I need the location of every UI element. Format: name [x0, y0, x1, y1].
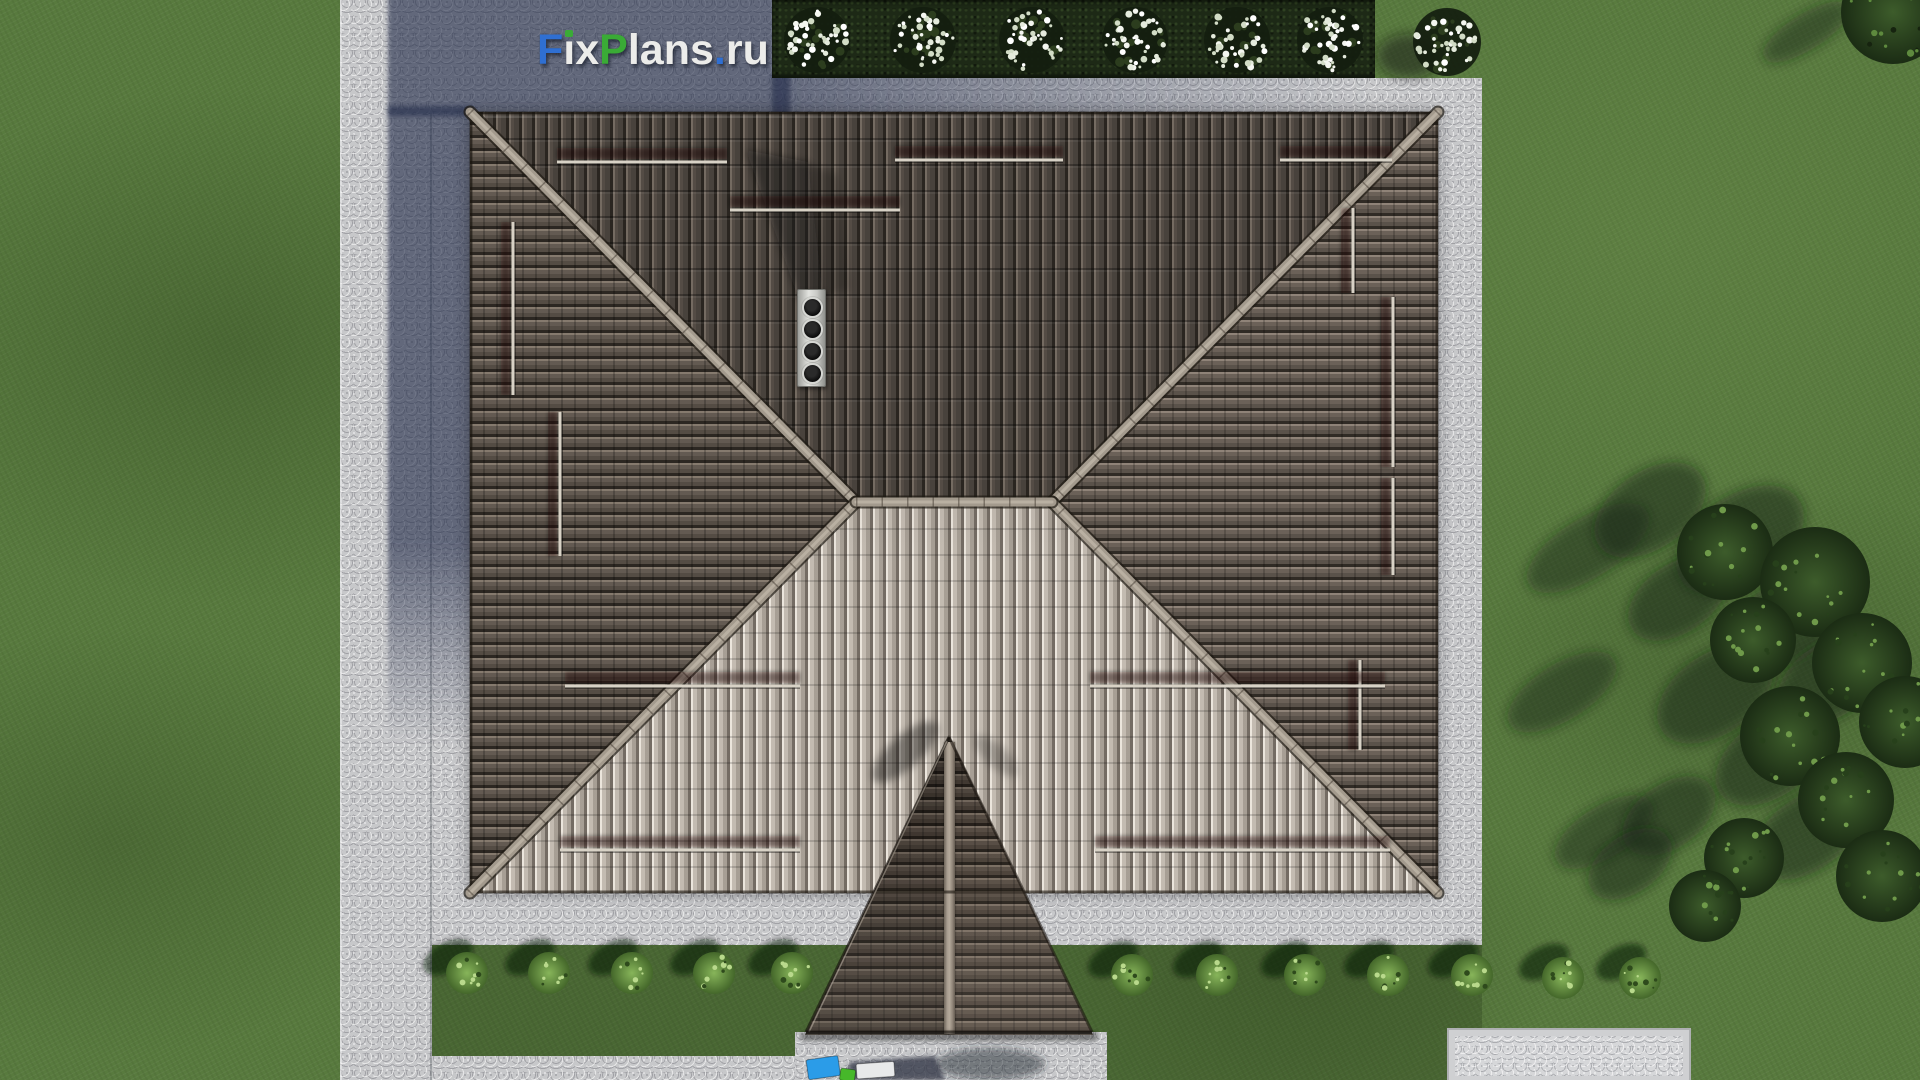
chimney-vent [802, 297, 823, 318]
brand-letter: P [599, 26, 628, 75]
porch-ridge-beam [944, 742, 955, 1034]
brand-letter: F [537, 26, 563, 75]
brand-letter: ru [726, 26, 769, 75]
chimney [797, 289, 826, 387]
brand-watermark: FıxPlans.ru [537, 26, 769, 75]
chimney-vent [802, 319, 823, 340]
building-shadow-left [388, 106, 474, 746]
brand-i-dot [565, 30, 573, 37]
chimney-vent [802, 363, 823, 384]
brand-letter: . [714, 26, 726, 75]
entrance-apron-pavement [795, 1032, 1107, 1080]
hedge-strip [772, 0, 1375, 78]
brand-letter: ı [563, 26, 575, 75]
chimney-vent [802, 341, 823, 362]
hedge-shadow [772, 74, 1372, 116]
brand-letter: lans [628, 26, 714, 75]
aerial-house-render: FıxPlans.ru [0, 0, 1920, 1080]
brand-letter: x [575, 26, 599, 75]
patio-slab [1447, 1028, 1691, 1080]
